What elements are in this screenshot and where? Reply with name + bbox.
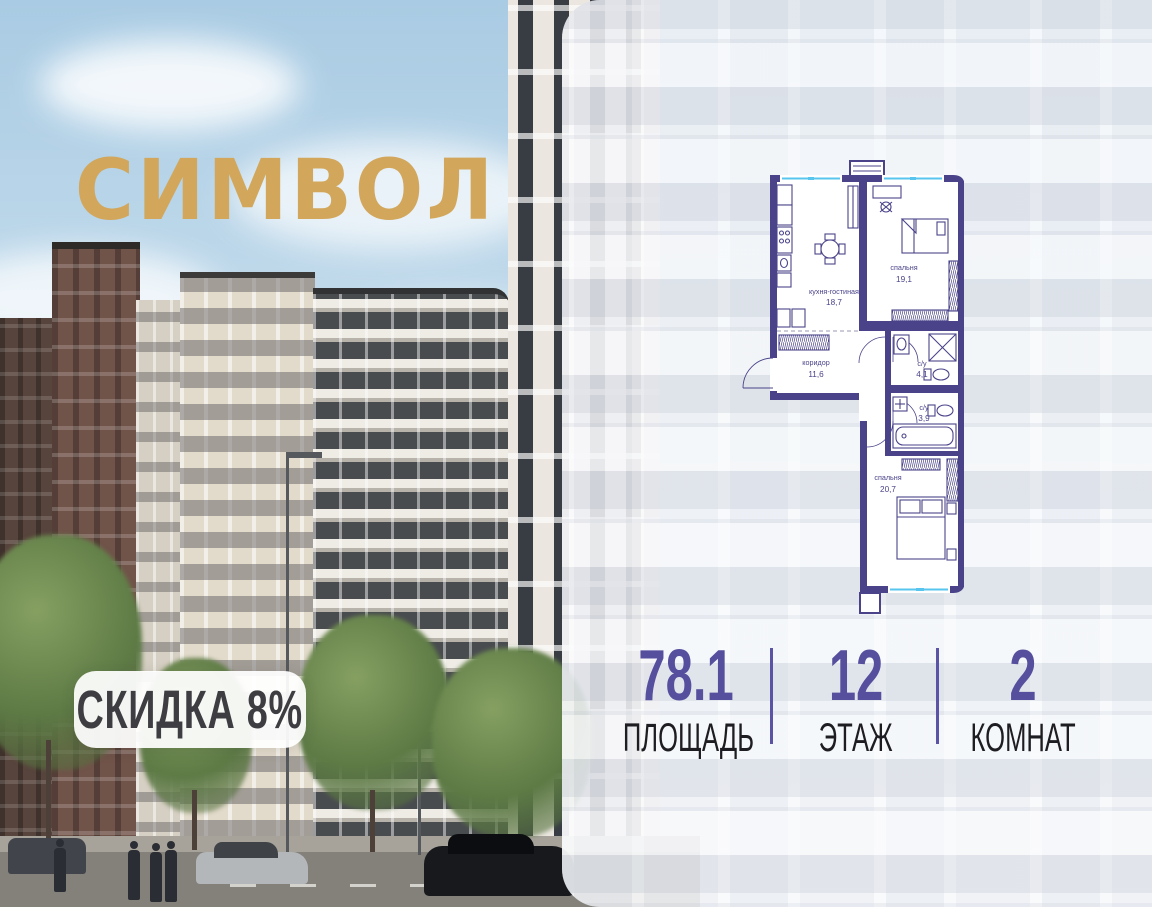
room-label: спальня xyxy=(890,263,917,272)
plan-shaft-box xyxy=(860,593,880,613)
room-label: с/у xyxy=(919,403,929,412)
discount-badge[interactable]: СКИДКА 8% xyxy=(74,671,306,748)
room-label: кухня-гостиная xyxy=(809,287,859,296)
room-area: 11,6 xyxy=(808,370,824,379)
stat-rooms: 2 КОМНАТ xyxy=(938,642,1108,758)
stat-rooms-value: 2 xyxy=(1009,642,1036,710)
street-lamp xyxy=(286,452,289,852)
pedestrian xyxy=(54,848,66,892)
room-label: спальня xyxy=(874,473,901,482)
car-sedan xyxy=(196,852,308,884)
discount-badge-label: СКИДКА 8% xyxy=(77,679,303,741)
entrance-opening xyxy=(770,358,777,391)
tree-trunk xyxy=(46,740,51,850)
room-area: 19,1 xyxy=(896,275,912,284)
stat-floor-label: ЭТАЖ xyxy=(819,718,893,758)
room-area: 3,9 xyxy=(918,414,930,423)
project-logo: СИМВОЛ xyxy=(67,148,504,232)
tree-trunk xyxy=(192,790,197,850)
room-area: 18,7 xyxy=(826,298,842,307)
room-vestibule xyxy=(859,331,885,421)
pedestrian xyxy=(150,852,162,902)
floor-plan: кухня-гостиная 18,7 спальня 19,1 коридор… xyxy=(740,153,964,673)
stat-floor: 12 ЭТАЖ xyxy=(776,642,936,758)
tree xyxy=(298,615,450,810)
car-suv xyxy=(8,838,86,874)
tree-trunk xyxy=(370,790,375,852)
stat-area: 78.1 ПЛОЩАДЬ xyxy=(586,642,786,758)
car-dark xyxy=(424,846,574,896)
plan-ac-unit xyxy=(850,161,884,177)
pedestrian xyxy=(165,850,177,902)
stat-area-label: ПЛОЩАДЬ xyxy=(623,718,754,758)
stat-divider xyxy=(770,648,773,744)
pedestrian xyxy=(128,850,140,900)
listing-card[interactable]: СИМВОЛ СКИДКА 8% xyxy=(0,0,1152,907)
room-label: коридор xyxy=(802,358,829,367)
room-label: с/у xyxy=(917,359,927,368)
stat-area-value: 78.1 xyxy=(638,642,733,710)
room-area: 20,7 xyxy=(880,485,896,494)
entrance-door xyxy=(743,358,773,388)
stat-rooms-label: КОМНАТ xyxy=(970,718,1075,758)
street-lamp-arm xyxy=(286,452,322,458)
cloud xyxy=(40,40,300,130)
stat-floor-value: 12 xyxy=(829,642,883,710)
room-area: 4,1 xyxy=(916,370,928,379)
